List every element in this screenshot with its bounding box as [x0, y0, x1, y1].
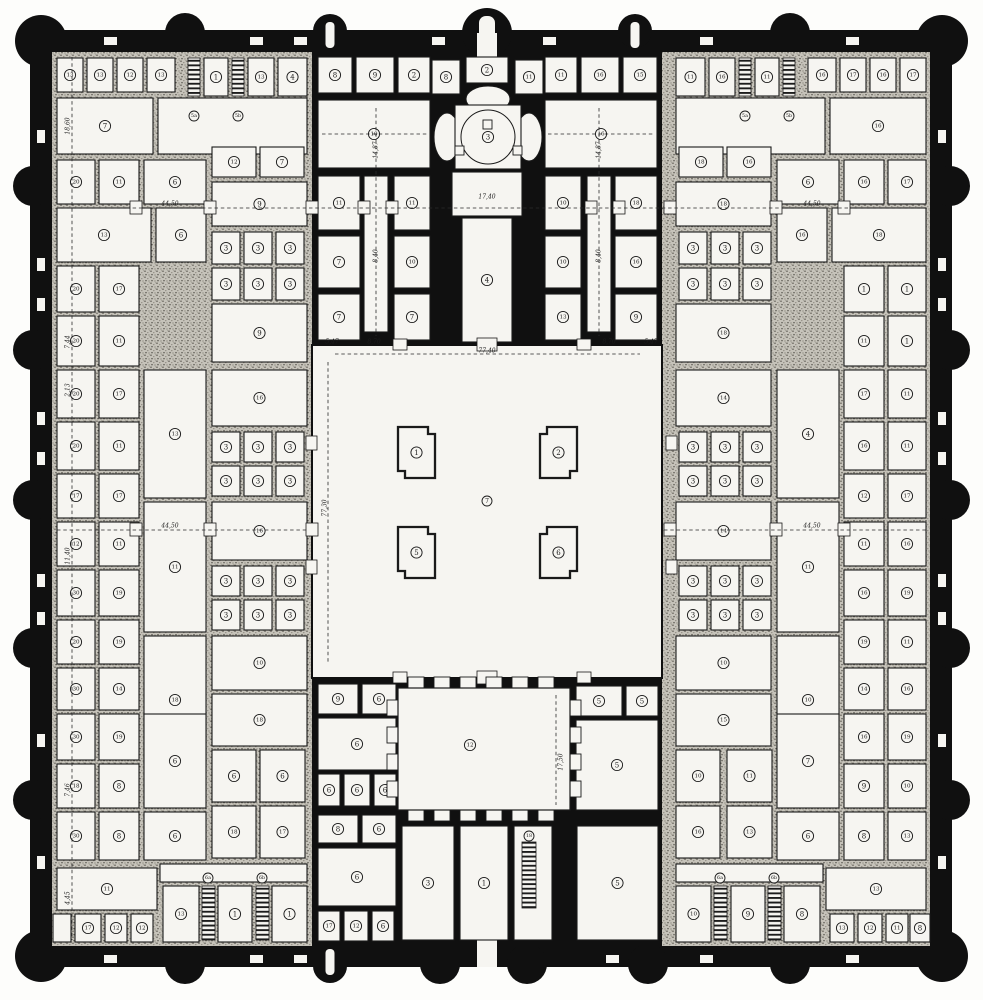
svg-text:19: 19	[115, 590, 123, 596]
room-number: 12	[464, 739, 475, 750]
dome-pier	[513, 146, 522, 155]
room-number: 8	[796, 908, 807, 919]
room-number: 5	[411, 547, 422, 558]
wall-slit	[104, 37, 117, 45]
svg-text:6b: 6b	[771, 875, 777, 881]
svg-text:6: 6	[355, 740, 360, 748]
wall-niche	[387, 700, 399, 716]
svg-text:10: 10	[720, 660, 728, 666]
svg-text:1: 1	[482, 879, 486, 887]
flank-tower	[13, 166, 53, 206]
room-number: 7	[99, 120, 110, 131]
svg-text:16: 16	[874, 123, 882, 129]
svg-text:3: 3	[755, 280, 759, 288]
wall-slit	[846, 37, 859, 45]
svg-text:16: 16	[860, 590, 868, 596]
wall-niche	[486, 809, 502, 821]
wall-slit	[846, 955, 859, 963]
svg-text:5b: 5b	[786, 113, 792, 119]
room-number: 18	[524, 831, 534, 841]
room-number: 3	[284, 278, 295, 289]
svg-text:8: 8	[862, 832, 866, 840]
room-number: 3	[284, 575, 295, 586]
svg-text:9: 9	[257, 329, 261, 337]
room-number: 3	[284, 441, 295, 452]
room-number: 3	[252, 475, 263, 486]
room-number: 8	[914, 922, 925, 933]
svg-text:3: 3	[288, 577, 292, 585]
flank-tower	[770, 13, 810, 53]
svg-text:3: 3	[288, 280, 292, 288]
svg-text:9: 9	[746, 910, 750, 918]
room-number: 5	[636, 695, 647, 706]
room-number: 13	[169, 428, 180, 439]
doorway	[577, 339, 591, 350]
svg-text:16: 16	[256, 395, 264, 401]
wall-slit	[37, 574, 45, 587]
room-number: 3	[252, 278, 263, 289]
svg-text:6: 6	[556, 549, 561, 557]
dimension-label: 44,50	[160, 201, 178, 208]
svg-text:13: 13	[157, 72, 165, 78]
svg-text:3: 3	[723, 443, 727, 451]
svg-text:3: 3	[723, 611, 727, 619]
wall-slit	[37, 612, 45, 625]
room-number: 3	[252, 575, 263, 586]
room-number: 12	[124, 69, 135, 80]
svg-text:10: 10	[559, 259, 567, 265]
room-number: 6	[351, 871, 362, 882]
room-number: 5a	[189, 111, 199, 121]
svg-text:10: 10	[559, 200, 567, 206]
svg-text:15: 15	[636, 72, 644, 78]
room-number: 17	[907, 69, 918, 80]
svg-text:17: 17	[72, 493, 80, 499]
room-number: 3	[719, 475, 730, 486]
dimension-label: 17,40	[478, 194, 495, 201]
wall-slit	[938, 258, 946, 271]
svg-text:11: 11	[860, 338, 867, 344]
svg-text:3: 3	[224, 280, 228, 288]
svg-text:4: 4	[806, 430, 811, 438]
wall-slit	[432, 37, 445, 45]
svg-text:30: 30	[72, 734, 80, 740]
svg-text:11: 11	[103, 886, 110, 892]
room-number: 6	[323, 784, 334, 795]
room-number: 5b	[233, 111, 243, 121]
room-number: 3	[220, 441, 231, 452]
wall-slit	[294, 37, 307, 45]
svg-text:3: 3	[256, 443, 260, 451]
room-number: 6	[175, 229, 186, 240]
gate-passage	[477, 938, 497, 967]
u-tower-slot	[326, 22, 335, 48]
room-number: 7	[802, 755, 813, 766]
doorway	[306, 523, 318, 536]
room-number: 19	[901, 731, 912, 742]
svg-text:3: 3	[691, 477, 695, 485]
wall-niche	[408, 677, 424, 689]
room-number: 3	[751, 475, 762, 486]
room-number: 6	[169, 830, 180, 841]
svg-text:20: 20	[72, 179, 80, 185]
svg-text:5a: 5a	[191, 113, 197, 119]
room-number: 2	[481, 64, 492, 75]
room-number: 10	[557, 197, 568, 208]
svg-text:1: 1	[414, 449, 418, 457]
wall-niche	[512, 809, 528, 821]
svg-text:11: 11	[335, 200, 342, 206]
svg-text:11: 11	[115, 541, 122, 547]
room-number: 8	[113, 780, 124, 791]
wall-niche	[569, 754, 581, 770]
room-number: 1	[411, 447, 422, 458]
svg-text:3: 3	[288, 477, 292, 485]
doorway	[770, 523, 782, 536]
doorway	[204, 201, 216, 214]
svg-text:15: 15	[720, 717, 728, 723]
svg-text:17: 17	[860, 391, 868, 397]
flank-tower	[930, 780, 970, 820]
wall-niche	[512, 677, 528, 689]
svg-text:16: 16	[632, 259, 640, 265]
room-number: 6	[169, 755, 180, 766]
room-number: 10	[406, 256, 417, 267]
doorway	[358, 201, 370, 214]
room-number: 10	[557, 256, 568, 267]
room-number: 18	[254, 714, 265, 725]
wall-slit	[938, 298, 946, 311]
room-number: 16	[630, 256, 641, 267]
room-number: 13	[870, 883, 881, 894]
room-number: 6	[377, 920, 388, 931]
room-number: 5a	[740, 111, 750, 121]
room-number: 19	[901, 587, 912, 598]
room-number: 3	[687, 609, 698, 620]
svg-text:20: 20	[72, 338, 80, 344]
doorway	[585, 201, 597, 214]
svg-text:3: 3	[755, 577, 759, 585]
dimension-label: 14,87	[596, 141, 603, 158]
room-number: 9	[742, 908, 753, 919]
room-number: 17	[277, 826, 288, 837]
svg-text:5: 5	[597, 697, 601, 705]
stair	[783, 58, 795, 96]
svg-text:13: 13	[66, 72, 74, 78]
room-number: 14	[718, 392, 729, 403]
svg-text:6: 6	[232, 772, 237, 780]
svg-text:19: 19	[115, 734, 123, 740]
room-number: 10	[718, 657, 729, 668]
room-number: 16	[858, 440, 869, 451]
wall-slit	[37, 258, 45, 271]
svg-text:6: 6	[355, 873, 360, 881]
room-number: 5b	[784, 111, 794, 121]
svg-text:13: 13	[903, 833, 911, 839]
svg-text:16: 16	[860, 734, 868, 740]
svg-text:13: 13	[100, 232, 108, 238]
svg-text:6: 6	[327, 786, 332, 794]
wall-slit	[250, 37, 263, 45]
room-number: 3	[719, 278, 730, 289]
svg-text:10: 10	[804, 697, 812, 703]
svg-text:10: 10	[690, 911, 698, 917]
svg-text:18: 18	[720, 201, 728, 207]
svg-text:20: 20	[72, 639, 80, 645]
room-number: 19	[113, 587, 124, 598]
svg-text:17: 17	[115, 391, 123, 397]
svg-text:6: 6	[179, 231, 184, 239]
room	[160, 864, 307, 882]
svg-text:3: 3	[755, 611, 759, 619]
room-number: 9	[254, 327, 265, 338]
svg-text:7: 7	[485, 498, 489, 505]
wall-slit	[606, 955, 619, 963]
dimension-label: 8,70	[367, 339, 381, 346]
svg-text:10: 10	[408, 259, 416, 265]
room-number: 3	[482, 131, 493, 142]
room-number: 8	[113, 830, 124, 841]
doorway	[666, 560, 677, 574]
flank-tower	[770, 944, 810, 984]
wall-slit	[938, 574, 946, 587]
room-number: 13	[94, 69, 105, 80]
room-number: 16	[716, 71, 727, 82]
svg-text:8: 8	[333, 71, 337, 79]
svg-text:16: 16	[694, 829, 702, 835]
room-number: 11	[113, 538, 124, 549]
wall-slit	[37, 130, 45, 143]
svg-text:1: 1	[905, 337, 909, 345]
svg-text:5b: 5b	[235, 113, 241, 119]
room-number: 10	[254, 657, 265, 668]
svg-text:6a: 6a	[205, 875, 211, 881]
svg-text:12: 12	[466, 742, 474, 748]
room-number: 3	[220, 475, 231, 486]
dimension-label: 5,47	[325, 339, 339, 346]
room-number: 12	[858, 490, 869, 501]
room-number: 16	[254, 525, 265, 536]
room-number: 13	[901, 830, 912, 841]
room-number: 10	[802, 694, 813, 705]
room-number: 16	[692, 826, 703, 837]
svg-text:17: 17	[849, 72, 857, 78]
room-number: 2	[553, 447, 564, 458]
svg-text:11: 11	[893, 925, 900, 931]
svg-text:5: 5	[640, 697, 644, 705]
doorway	[393, 672, 407, 683]
room-number: 13	[155, 69, 166, 80]
svg-text:11: 11	[115, 443, 122, 449]
room-number: 10	[692, 770, 703, 781]
svg-text:14: 14	[720, 395, 728, 401]
svg-text:11: 11	[687, 74, 694, 80]
room-number: 16	[858, 176, 869, 187]
stair	[768, 886, 781, 940]
room-number: 3	[687, 475, 698, 486]
room-number: 16	[743, 156, 754, 167]
svg-text:3: 3	[256, 477, 260, 485]
room-number: 13	[64, 69, 75, 80]
svg-text:3: 3	[755, 443, 759, 451]
room-number: 1	[901, 335, 912, 346]
room-number: 6a	[715, 873, 725, 883]
wall-niche	[538, 809, 554, 821]
svg-text:11: 11	[746, 773, 753, 779]
svg-text:30: 30	[72, 590, 80, 596]
room-number: 11	[744, 770, 755, 781]
room-number: 18	[695, 156, 706, 167]
wall-niche	[460, 677, 476, 689]
room-number: 15	[634, 69, 645, 80]
room-number: 13	[98, 229, 109, 240]
room-number: 16	[872, 120, 883, 131]
dimension-label: 8,70	[602, 339, 616, 346]
svg-text:12: 12	[72, 541, 80, 547]
room-number: 3	[252, 609, 263, 620]
wall-slit	[938, 856, 946, 869]
wall-slit	[938, 612, 946, 625]
flank-tower	[13, 480, 53, 520]
svg-text:11: 11	[903, 391, 910, 397]
flank-tower	[930, 628, 970, 668]
svg-text:1: 1	[905, 285, 909, 293]
room-number: 15	[718, 714, 729, 725]
wall-slit	[700, 955, 713, 963]
room-number: 2	[408, 69, 419, 80]
svg-text:3: 3	[755, 244, 759, 252]
svg-text:16: 16	[860, 179, 868, 185]
svg-text:2: 2	[556, 449, 560, 457]
room-number: 3	[220, 609, 231, 620]
svg-text:18: 18	[875, 232, 883, 238]
flank-tower	[13, 330, 53, 370]
room-number: 3	[220, 278, 231, 289]
svg-text:18: 18	[526, 833, 532, 839]
room-number: 17	[113, 490, 124, 501]
svg-text:6a: 6a	[717, 875, 723, 881]
svg-text:3: 3	[486, 133, 490, 141]
svg-text:13: 13	[171, 431, 179, 437]
room-number: 6	[802, 176, 813, 187]
room-number: 9	[369, 69, 380, 80]
svg-text:8: 8	[918, 924, 922, 932]
doorway	[664, 201, 676, 214]
room-number: 3	[719, 242, 730, 253]
svg-text:8: 8	[336, 825, 340, 833]
room-number: 17	[901, 176, 912, 187]
room-number: 13	[255, 71, 266, 82]
doorway	[613, 201, 625, 214]
svg-text:30: 30	[72, 686, 80, 692]
room-number: 11	[523, 71, 534, 82]
svg-text:18: 18	[632, 200, 640, 206]
svg-text:3: 3	[288, 443, 292, 451]
wall-slit	[37, 856, 45, 869]
svg-text:19: 19	[903, 734, 911, 740]
svg-text:10: 10	[256, 660, 264, 666]
room-number: 18	[630, 197, 641, 208]
svg-text:3: 3	[691, 577, 695, 585]
room-number: 9	[630, 311, 641, 322]
svg-text:3: 3	[224, 443, 228, 451]
svg-text:20: 20	[72, 443, 80, 449]
room-number: 11	[113, 335, 124, 346]
room-number: 16	[594, 69, 605, 80]
svg-text:14: 14	[115, 686, 123, 692]
svg-text:13: 13	[746, 829, 754, 835]
room-number: 17	[901, 490, 912, 501]
room-number: 3	[719, 441, 730, 452]
wall-slit	[938, 130, 946, 143]
room-number: 11	[333, 197, 344, 208]
flank-tower	[420, 944, 460, 984]
wall-slit	[543, 37, 556, 45]
dimension-label: 4,45	[65, 891, 72, 906]
wall-slit	[37, 734, 45, 747]
room-number: 11	[113, 440, 124, 451]
wall-slit	[37, 452, 45, 465]
room-number: 8	[329, 69, 340, 80]
room-number: 11	[858, 335, 869, 346]
room-number: 11	[406, 197, 417, 208]
room-number: 4	[481, 274, 492, 285]
room-number: 6	[553, 547, 564, 558]
doorway	[666, 436, 677, 450]
u-tower-slot	[631, 22, 640, 48]
svg-text:3: 3	[723, 244, 727, 252]
room-number: 11	[858, 538, 869, 549]
room-number: 7	[333, 311, 344, 322]
stair	[188, 58, 200, 96]
room-number: 9	[858, 780, 869, 791]
doorway	[306, 560, 317, 574]
svg-text:11: 11	[763, 74, 770, 80]
room-number: 6	[228, 770, 239, 781]
svg-text:5a: 5a	[742, 113, 748, 119]
svg-text:18: 18	[72, 783, 80, 789]
courtyard	[312, 345, 662, 678]
svg-text:3: 3	[723, 477, 727, 485]
room-number: 11	[761, 71, 772, 82]
svg-text:8: 8	[117, 782, 121, 790]
doorway	[770, 201, 782, 214]
flank-tower	[13, 780, 53, 820]
svg-text:3: 3	[256, 611, 260, 619]
svg-text:9: 9	[862, 782, 866, 790]
svg-text:4: 4	[485, 276, 490, 284]
room-number: 16	[796, 229, 807, 240]
room-number: 16	[877, 69, 888, 80]
svg-text:18: 18	[171, 697, 179, 703]
svg-text:18: 18	[720, 330, 728, 336]
room-number: 3	[284, 609, 295, 620]
dimension-label: 44,50	[802, 523, 820, 530]
svg-text:9: 9	[257, 200, 261, 208]
dimension-label: 44,50	[802, 201, 820, 208]
room-number: 1	[858, 283, 869, 294]
room-number: 16	[858, 587, 869, 598]
svg-text:13: 13	[177, 911, 185, 917]
room-number: 17	[858, 388, 869, 399]
doorway	[393, 339, 407, 350]
room-number: 19	[113, 636, 124, 647]
room-number: 4	[802, 428, 813, 439]
dimension-label: 8,40	[373, 249, 380, 263]
room-number: 19	[113, 731, 124, 742]
flank-tower	[930, 330, 970, 370]
svg-text:2: 2	[412, 71, 416, 79]
